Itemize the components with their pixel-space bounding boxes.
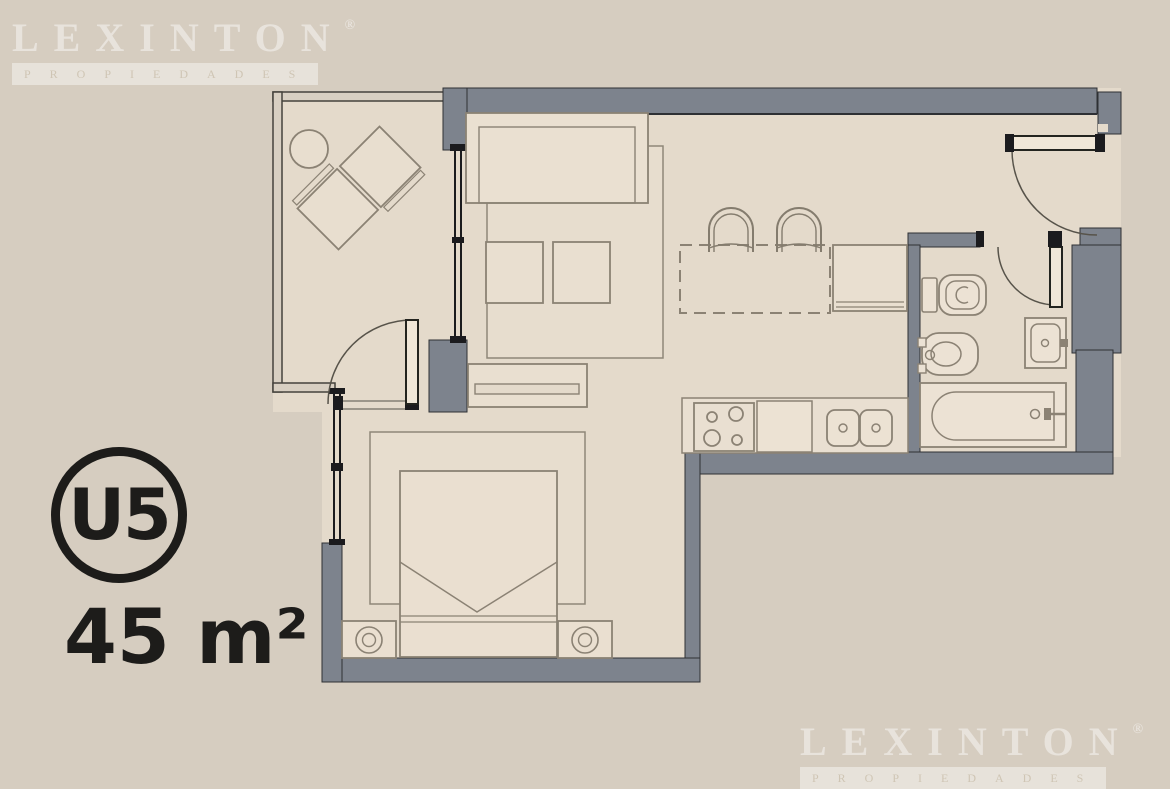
entry-jamb-notch [1098, 124, 1108, 132]
area-label: 45 m² [64, 592, 309, 681]
toilet [922, 275, 986, 315]
bed [400, 471, 557, 657]
round-table [290, 130, 328, 168]
floorplan-image: LEXINTON® PROPIEDADES LEXINTON® PROPIEDA… [0, 0, 1170, 785]
counter-top [757, 401, 812, 452]
kitchen-sink [827, 410, 892, 446]
nightstand-right [558, 621, 612, 658]
nightstand-left [342, 621, 396, 658]
window-bedroom [329, 388, 345, 545]
unit-label: U5 [68, 474, 170, 556]
window-living [450, 144, 466, 343]
vanity-sink [1025, 318, 1068, 368]
refrigerator [833, 245, 907, 311]
bidet [918, 333, 978, 375]
tv-console [468, 364, 587, 407]
sofa [466, 113, 648, 203]
bathtub [920, 383, 1066, 447]
unit-badge: U5 [51, 447, 187, 583]
